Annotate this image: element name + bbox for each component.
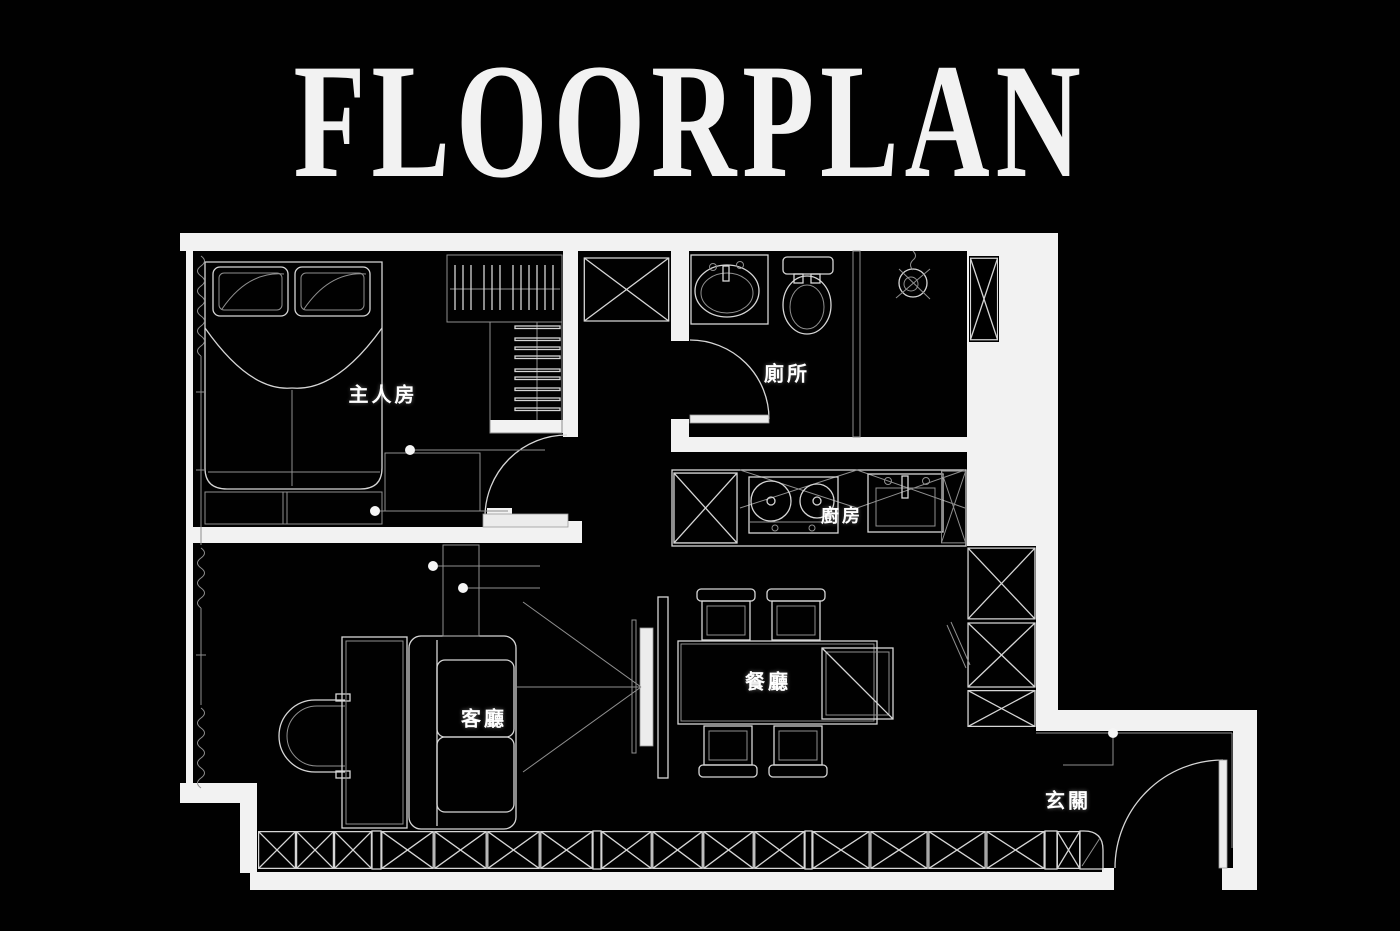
room-label-entrance: 玄關 [1045, 785, 1091, 814]
kitchen-area [672, 470, 966, 546]
wall-kitchen-top [671, 437, 1001, 452]
wall-bedroom-corridor [563, 251, 578, 437]
dining-chair [699, 726, 757, 777]
door-leaf [483, 514, 568, 527]
wall-bottom [250, 872, 1108, 890]
sofa-console [342, 637, 407, 828]
closet-bottom-panel [490, 420, 577, 433]
wall-step-left-vertical [240, 803, 257, 873]
room-label-living: 客廳 [461, 703, 507, 732]
room-label-kitchen: 廚房 [821, 502, 863, 528]
door-swing-arc [690, 340, 769, 419]
side-unit [822, 648, 893, 719]
door-leaf [1219, 760, 1227, 868]
closet-xbox [584, 258, 668, 321]
toilet-wc [783, 257, 833, 334]
bottom-cabinet-run [259, 831, 1103, 869]
room-label-master-bedroom: 主人房 [349, 379, 418, 408]
tv-feature-wall [658, 597, 668, 778]
armchair [279, 694, 350, 778]
dining-chair [767, 589, 825, 640]
pillow [295, 267, 370, 316]
sofa-cushion [437, 737, 514, 812]
entry-cabinet-xbox [968, 691, 1035, 727]
bathroom-sink [691, 255, 768, 324]
duct-shaft [969, 256, 999, 342]
tv-screen [640, 628, 653, 746]
tv-viewing-lines [516, 602, 641, 772]
wall-left [186, 251, 193, 790]
floorplan-page: FLOORPLAN [0, 0, 1400, 931]
door-swing-arc [1115, 760, 1223, 868]
wardrobe-hangers [447, 255, 562, 322]
wall-right-outer [1233, 731, 1257, 890]
entry-cabinet-xbox [968, 548, 1035, 619]
wall-bedroom-living [190, 527, 582, 543]
duvet-fold [205, 328, 292, 388]
wall-right-strip [1036, 546, 1058, 710]
bed [205, 262, 382, 489]
wall-top [180, 233, 1058, 251]
toilet-area [690, 251, 999, 437]
master-bedroom-area [196, 255, 568, 788]
kitchen-sink [868, 474, 943, 532]
entry-door [1102, 760, 1227, 890]
door-swing-arc [485, 435, 567, 517]
wall-toilet-left-upper [671, 251, 689, 341]
tv [516, 597, 668, 778]
door-threshold-jamb [1102, 868, 1114, 890]
pillow [213, 267, 288, 316]
door-leaf [690, 415, 769, 423]
room-label-dining: 餐廳 [745, 666, 791, 695]
wall-entry-horizontal [1036, 710, 1257, 731]
dining-chair [697, 589, 755, 640]
closet-shelves [447, 322, 562, 433]
open-cabinet-door [947, 622, 970, 668]
toilet-door [690, 340, 769, 423]
kitchen-counter [672, 470, 966, 546]
floorplan-drawing [0, 0, 1400, 931]
shower-partition [853, 251, 860, 437]
sofa [409, 636, 516, 829]
bed-foot-bench [205, 492, 382, 524]
wall-step-bottom-left [180, 783, 257, 803]
ceiling-light-dot [1108, 728, 1118, 738]
dining-chair [769, 726, 827, 777]
room-label-toilet: 廁所 [764, 358, 810, 387]
rounded-end-cabinet [1080, 831, 1103, 869]
entry-cabinet-xbox [968, 623, 1035, 687]
shower-head-icon [896, 251, 930, 299]
kitchen-cabinet-xbox [674, 473, 737, 543]
bedroom-desk [385, 453, 480, 511]
